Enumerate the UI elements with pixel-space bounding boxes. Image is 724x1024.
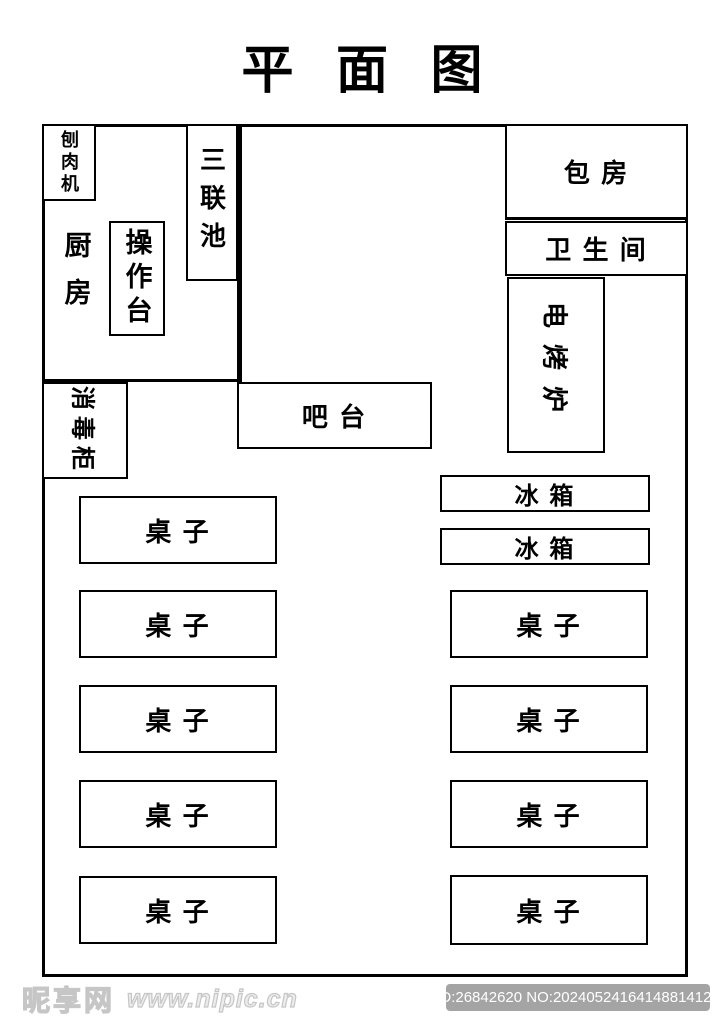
table-box: 桌 子 [450,590,648,658]
table-box: 桌 子 [79,590,277,658]
nipic-url: www.nipic.cn [127,985,298,1014]
room-private-room: 包 房 [505,124,688,220]
table-box: 桌 子 [450,780,648,848]
fridge-box: 冰 箱 [440,528,650,565]
image-id-badge: ID:26842620 NO:20240524164148814128 [446,984,710,1011]
fridge-box: 冰 箱 [440,475,650,512]
table-box: 桌 子 [79,876,277,944]
table-box: 桌 子 [79,780,277,848]
kitchen-right-wall [237,124,242,382]
page-title: 平 面 图 [0,30,724,100]
room-triple-sink: 三联池 [186,124,238,281]
table-box: 桌 子 [450,685,648,753]
room-disinfection-cabinet: 消毒柜 [42,382,128,479]
room-electric-oven: 电烤炉 [507,277,605,453]
table-box: 桌 子 [79,496,277,564]
nipic-watermark: 昵享网 www.nipic.cn [22,984,298,1014]
nipic-logo: 昵享网 [22,979,115,1019]
room-restroom: 卫 生 间 [505,221,688,276]
table-box: 桌 子 [450,875,648,945]
room-meat-slicer: 刨肉机 [42,124,96,201]
kitchen-label: 厨房 [56,236,96,320]
room-bar-counter: 吧 台 [237,382,432,449]
table-box: 桌 子 [79,685,277,753]
room-prep-counter: 操作台 [109,221,165,336]
